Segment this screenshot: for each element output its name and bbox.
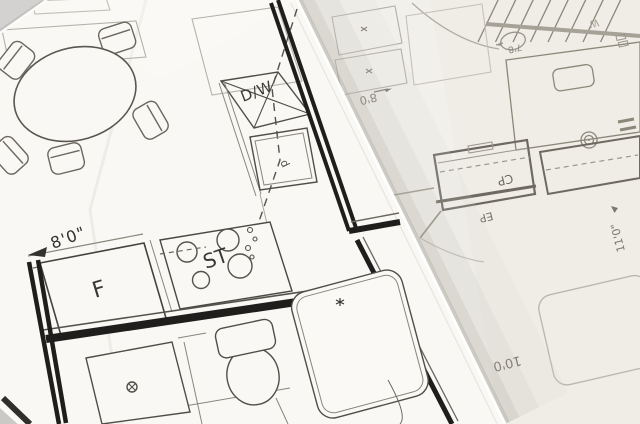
blueprint-photo: 7'8 W 8'0 <box>0 0 640 424</box>
floor-plan-scene: 7'8 W 8'0 <box>0 0 640 424</box>
